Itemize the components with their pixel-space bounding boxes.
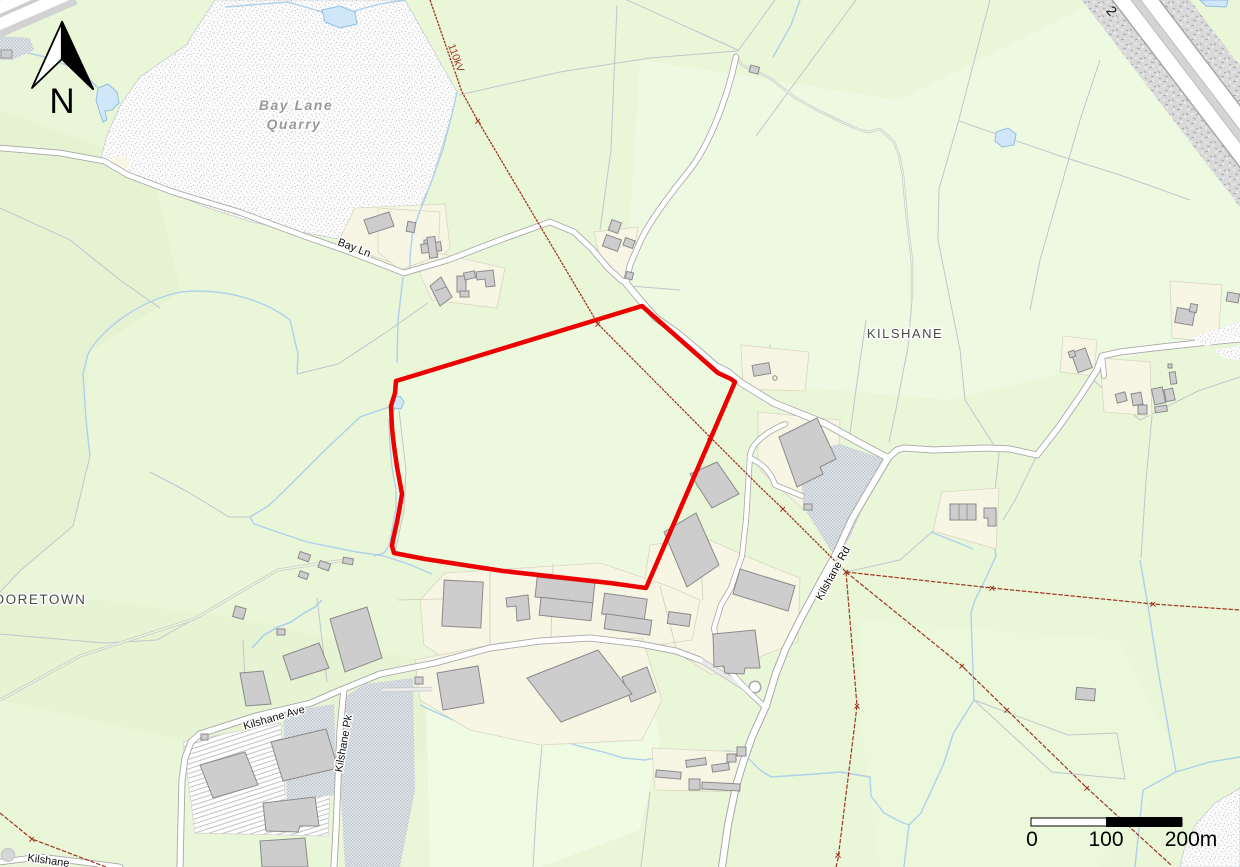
svg-text:200m: 200m xyxy=(1165,828,1218,851)
svg-text:Bay Lane: Bay Lane xyxy=(259,97,333,113)
svg-text:0: 0 xyxy=(1026,828,1038,851)
svg-text:100: 100 xyxy=(1088,828,1123,851)
svg-text:N: N xyxy=(49,82,74,121)
svg-text:OORETOWN: OORETOWN xyxy=(0,592,86,607)
svg-text:KILSHANE: KILSHANE xyxy=(867,326,943,341)
svg-text:Quarry: Quarry xyxy=(267,116,322,132)
